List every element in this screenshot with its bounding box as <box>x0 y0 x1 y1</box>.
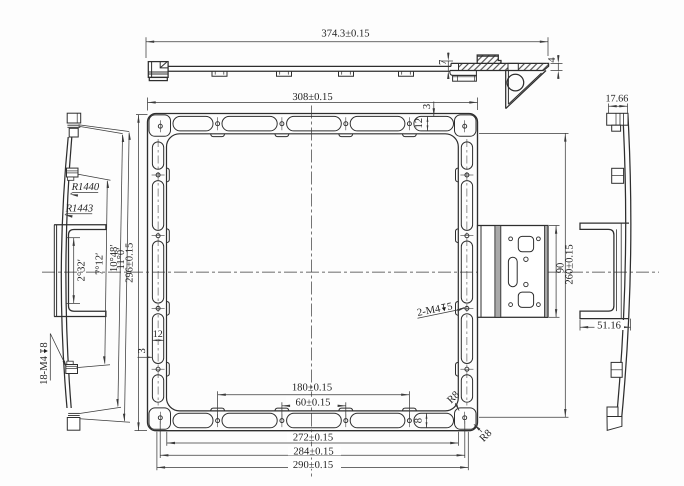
svg-text:2°32′: 2°32′ <box>77 259 88 281</box>
svg-text:R1443: R1443 <box>65 203 94 214</box>
svg-text:8: 8 <box>39 342 50 347</box>
svg-text:11°0′: 11°0′ <box>116 247 127 269</box>
svg-text:374.3±0.15: 374.3±0.15 <box>321 28 369 39</box>
svg-text:51.16: 51.16 <box>597 321 621 332</box>
svg-text:60±0.15: 60±0.15 <box>296 398 331 409</box>
svg-text:12: 12 <box>414 118 425 129</box>
svg-text:290±0.15: 290±0.15 <box>293 460 333 471</box>
svg-text:284±0.15: 284±0.15 <box>293 447 333 458</box>
svg-text:180±0.15: 180±0.15 <box>292 383 332 394</box>
svg-text:R1440: R1440 <box>71 182 100 193</box>
svg-text:272±0.15: 272±0.15 <box>293 433 333 444</box>
svg-text:17.66: 17.66 <box>605 94 628 105</box>
svg-text:3: 3 <box>137 348 148 353</box>
svg-text:7: 7 <box>438 60 449 65</box>
svg-text:8: 8 <box>414 418 425 423</box>
svg-text:7°12′: 7°12′ <box>95 253 106 275</box>
svg-text:308±0.15: 308±0.15 <box>292 92 332 103</box>
svg-text:18-M4: 18-M4 <box>39 355 50 385</box>
svg-text:4: 4 <box>547 57 558 63</box>
svg-text:260±0.15: 260±0.15 <box>565 244 576 284</box>
svg-text:12: 12 <box>153 329 163 340</box>
svg-text:3: 3 <box>422 104 433 109</box>
